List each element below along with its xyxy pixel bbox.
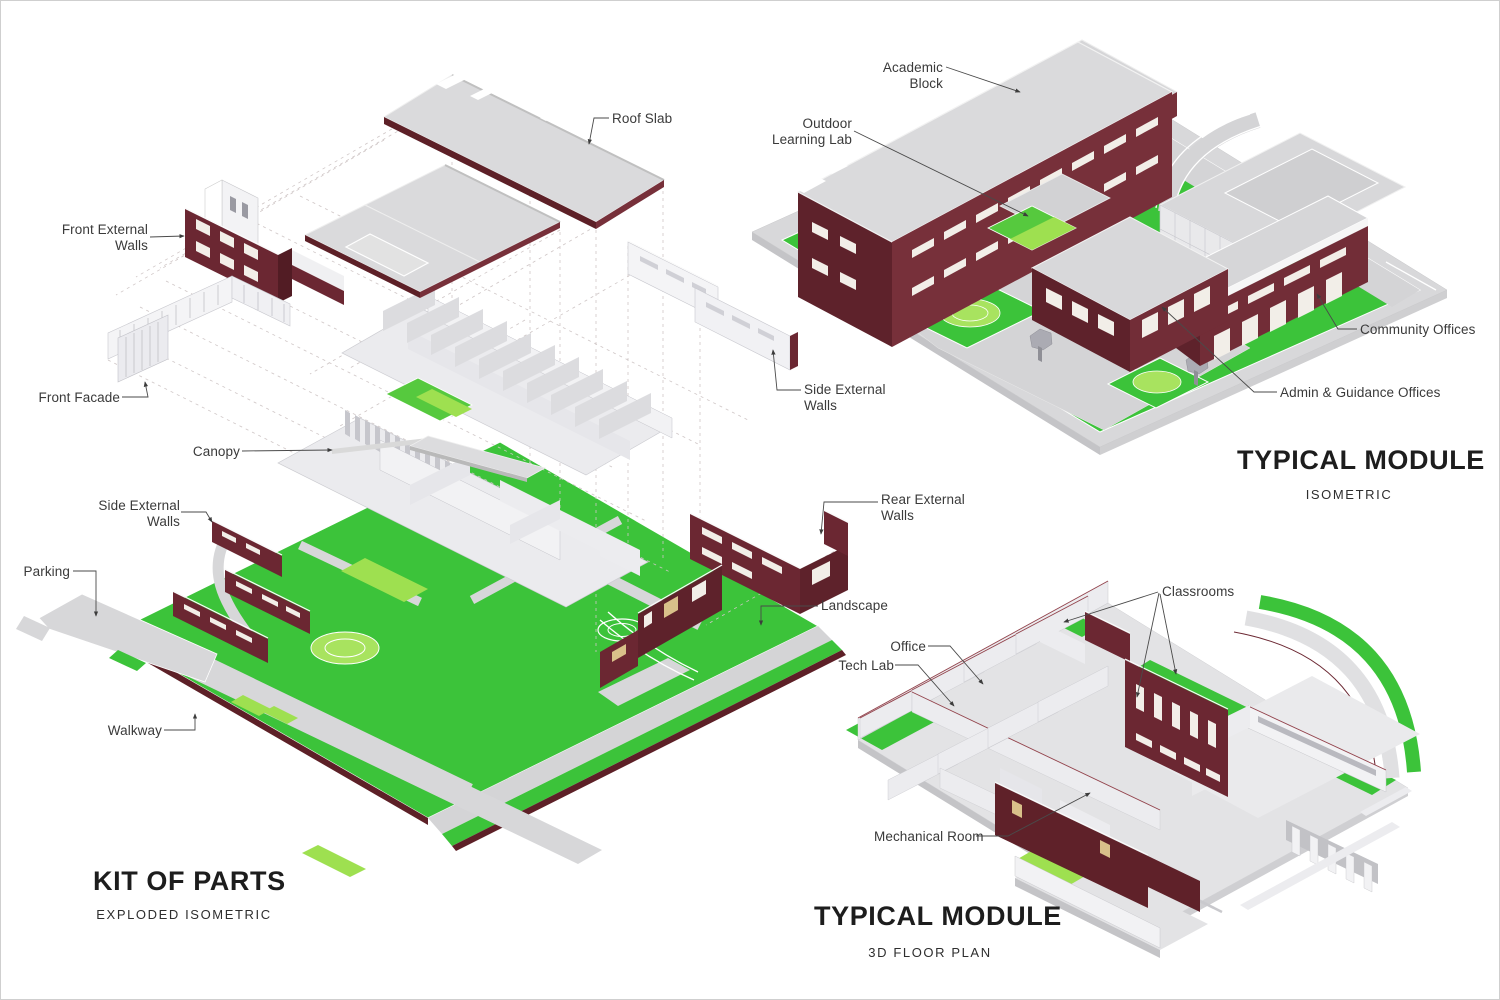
typical-module-plan-subtitle: 3D FLOOR PLAN	[814, 945, 1046, 960]
label-outdoor-learning-lab: Outdoor Learning Lab	[768, 116, 852, 147]
kit-of-parts-title: KIT OF PARTS	[93, 866, 286, 897]
typical-module-plan-title: TYPICAL MODULE	[814, 901, 1062, 932]
label-community-offices: Community Offices	[1360, 322, 1490, 338]
label-front-facade: Front Facade	[38, 390, 120, 406]
label-admin-guidance-offices: Admin & Guidance Offices	[1280, 385, 1450, 401]
side-external-walls-right-shape	[628, 241, 798, 370]
label-rear-external-walls: Rear External Walls	[881, 492, 971, 523]
kit-of-parts-subtitle: EXPLODED ISOMETRIC	[93, 907, 275, 922]
label-landscape: Landscape	[821, 598, 901, 614]
label-canopy: Canopy	[160, 444, 240, 460]
label-tech-lab: Tech Lab	[836, 658, 894, 674]
exploded-isometric-drawing	[16, 72, 848, 877]
architectural-presentation-sheet: Roof Slab Front External Walls Front Fac…	[0, 0, 1500, 1000]
typical-module-iso-title: TYPICAL MODULE	[1237, 445, 1485, 476]
label-side-external-walls-left: Side External Walls	[88, 498, 180, 529]
label-roof-slab: Roof Slab	[612, 111, 682, 127]
typical-module-iso-subtitle: ISOMETRIC	[1237, 487, 1461, 502]
label-classrooms: Classrooms	[1162, 584, 1242, 600]
label-front-external-walls: Front External Walls	[58, 222, 148, 253]
label-parking: Parking	[18, 564, 70, 580]
label-office: Office	[878, 639, 926, 655]
label-side-external-walls-right: Side External Walls	[804, 382, 894, 413]
label-mechanical-room: Mechanical Room	[874, 829, 984, 845]
label-walkway: Walkway	[102, 723, 162, 739]
label-academic-block: Academic Block	[853, 60, 943, 91]
